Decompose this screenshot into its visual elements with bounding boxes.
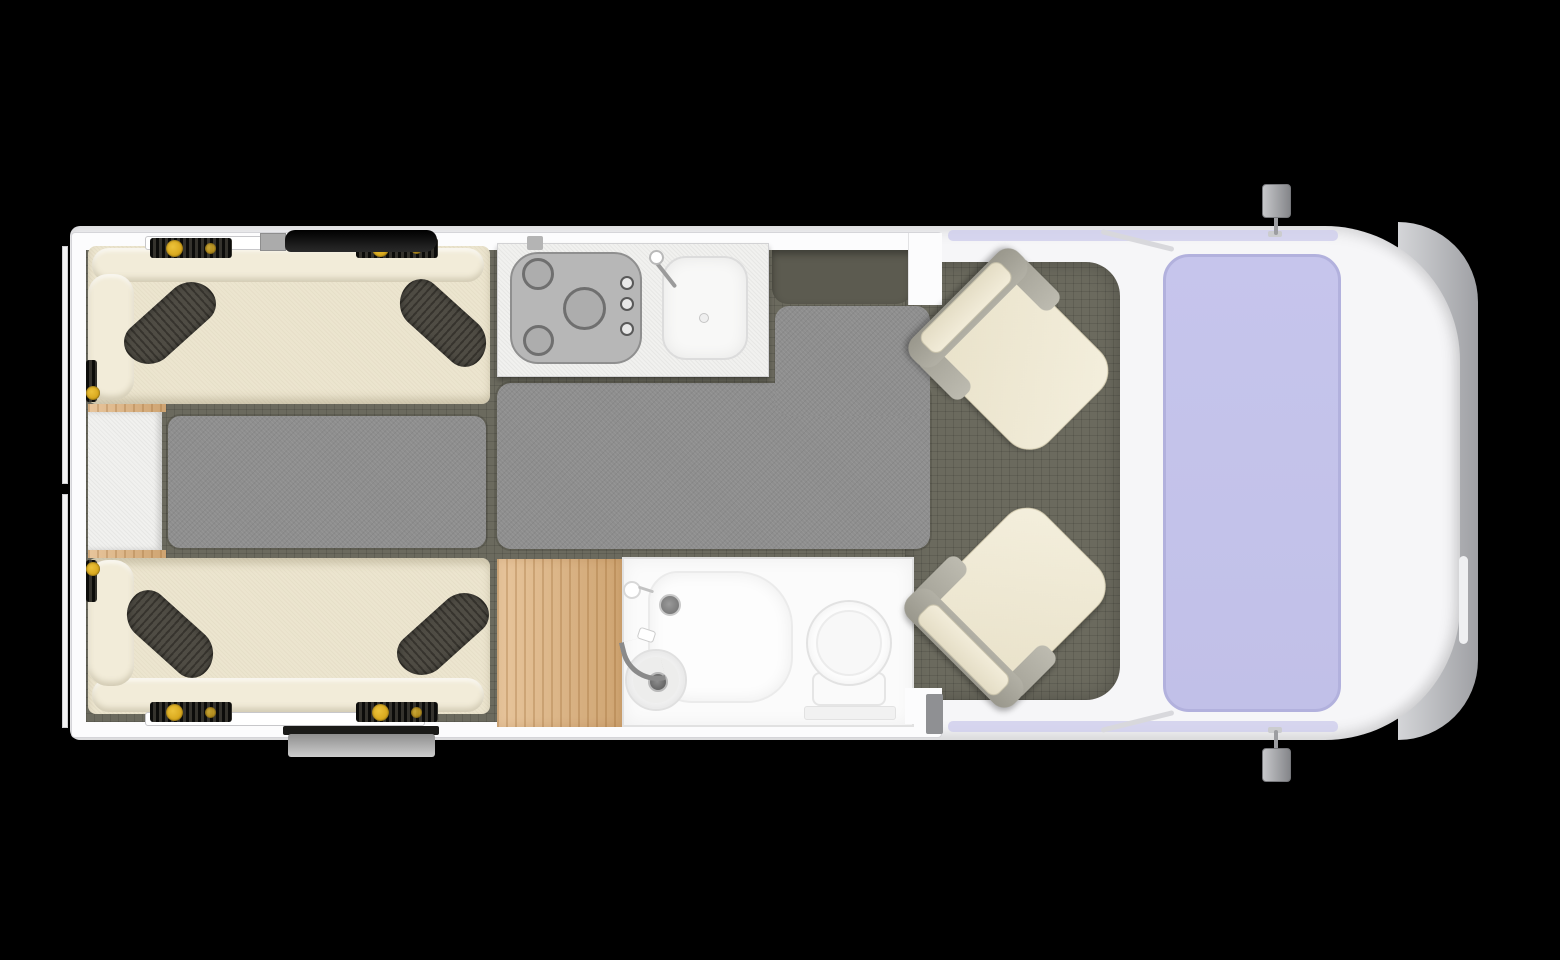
bumper-handle-notch — [1459, 556, 1468, 644]
sink-drain — [699, 313, 709, 323]
seatbelt-anchor-wall-top — [86, 360, 97, 402]
seatbelt-reel-icon — [86, 386, 100, 400]
side-mirror-bottom — [1262, 748, 1291, 782]
seatbelt-reel-icon — [166, 240, 183, 257]
seatbelt-reel-icon — [86, 562, 100, 576]
roof-stub — [527, 236, 543, 250]
oak-cabinet — [497, 559, 622, 727]
cab-step-block — [926, 694, 943, 734]
windshield — [1163, 254, 1341, 712]
rear-table-top — [88, 412, 162, 550]
seatbelt-reel-icon — [205, 707, 216, 718]
seatbelt-anchor-bottom-right — [356, 702, 438, 722]
hob-knob — [620, 322, 634, 336]
rear-window-line-top — [62, 246, 68, 484]
seatbelt-reel-icon — [411, 707, 422, 718]
awning-rail — [288, 734, 435, 757]
kitchen-sink — [662, 256, 748, 360]
hob-burner-large — [563, 287, 606, 330]
seatbelt-anchor-wall-bottom — [86, 560, 97, 602]
seatbelt-anchor-top-left — [150, 238, 232, 258]
shower-drain — [659, 594, 681, 616]
side-mirror-top — [1262, 184, 1291, 218]
floor-rug-left — [168, 416, 486, 548]
seatbelt-reel-icon — [372, 704, 389, 721]
rear-window-line-bottom — [62, 494, 68, 728]
roof-vent-box — [260, 233, 286, 251]
floor-rug-entry — [775, 306, 930, 416]
entry-door-recess — [772, 250, 912, 304]
campervan-floorplan — [0, 0, 1560, 960]
hob-burner-small-top — [522, 258, 554, 290]
seatbelt-reel-icon — [166, 704, 183, 721]
shower-mixer — [623, 581, 641, 599]
toilet-step — [804, 706, 896, 720]
hob-knob — [620, 297, 634, 311]
seatbelt-reel-icon — [205, 243, 216, 254]
rear-table-trim-top — [88, 404, 166, 412]
hob-burner-small-bottom — [523, 325, 554, 356]
seatbelt-anchor-bottom-left — [150, 702, 232, 722]
kitchen-faucet — [649, 250, 664, 265]
wall-top-right — [908, 233, 942, 305]
rear-table-trim-bottom — [88, 550, 166, 558]
toilet-seat — [816, 610, 882, 676]
hob-knob — [620, 276, 634, 290]
roof-vent-bar — [285, 230, 437, 252]
